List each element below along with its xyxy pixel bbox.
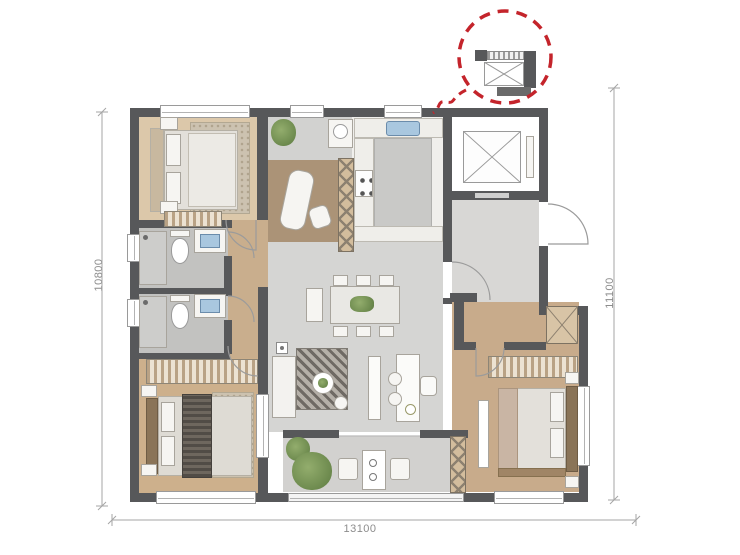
dining-end-chair xyxy=(306,288,323,322)
bedroom2-pillow xyxy=(161,402,175,432)
master-nightstand xyxy=(565,476,579,488)
dining-chair xyxy=(379,275,394,286)
elevator-door-opening xyxy=(475,193,509,198)
dining-chair xyxy=(333,326,348,337)
bedroom1-pillow xyxy=(166,134,181,166)
window-master-right xyxy=(577,386,590,466)
bathroom2-toilet xyxy=(171,303,189,329)
master-blanket xyxy=(498,388,518,470)
floor-plan-image: 10800 11100 13100 xyxy=(0,0,740,555)
side-chair xyxy=(420,376,437,396)
master-foot-runner xyxy=(498,468,566,477)
balcony-plant-large xyxy=(292,452,332,490)
master-nightstand xyxy=(565,372,579,384)
bathroom2-toilet-tank xyxy=(170,295,190,302)
dimension-label-right: 11100 xyxy=(604,263,616,323)
master-bench xyxy=(478,400,489,468)
door-arc-main-entry xyxy=(548,204,588,244)
bathroom1-toilet-tank xyxy=(170,230,190,237)
dining-chair xyxy=(356,326,371,337)
window-bedroom2-balcony xyxy=(256,394,269,458)
flue-vent-grille xyxy=(487,51,525,60)
flue-shaft-detail xyxy=(484,62,524,86)
wall-master-top-b xyxy=(504,342,546,350)
flue-wall-left xyxy=(475,50,487,61)
kitchen-sink xyxy=(386,121,420,136)
bathroom1-toilet xyxy=(171,238,189,264)
window-bedroom2-bottom xyxy=(156,491,256,504)
bedroom1-pillow xyxy=(166,172,181,204)
bedroom2-blanket xyxy=(182,394,212,478)
balcony-chair xyxy=(338,458,358,480)
elevator-door-slot xyxy=(526,136,534,178)
bedroom1-dresser xyxy=(164,211,222,227)
flue-wall-right xyxy=(524,51,536,88)
wall-corridor-left xyxy=(454,296,464,350)
floor-register-dot xyxy=(280,346,284,350)
kitchen-stove xyxy=(355,170,373,197)
dimension-label-bottom: 13100 xyxy=(320,523,400,535)
bathroom1-sink xyxy=(200,234,220,248)
bedroom2-wardrobe xyxy=(146,359,258,384)
work-chair xyxy=(388,372,402,386)
entry-hall-floor xyxy=(452,200,539,302)
bedroom2-nightstand xyxy=(141,464,157,476)
dining-chair xyxy=(333,275,348,286)
balcony-master-cabinet xyxy=(450,436,466,493)
bedroom1-nightstand xyxy=(160,117,178,130)
bedroom2-pillow xyxy=(161,436,175,466)
sofa xyxy=(272,356,296,418)
bathroom2-drain-icon xyxy=(143,300,148,305)
bedroom2-nightstand xyxy=(141,385,157,397)
console-cabinet xyxy=(368,356,381,420)
wall-living-balcony-a xyxy=(283,430,339,438)
balcony-table-dot xyxy=(369,459,377,467)
balcony-chair xyxy=(390,458,410,480)
window-utility-top xyxy=(290,105,324,118)
dining-chair xyxy=(356,275,371,286)
bedroom1-duvet xyxy=(188,133,236,207)
dining-chair xyxy=(379,326,394,337)
floor-outlet-icon xyxy=(405,404,416,415)
wall-bedroom1-right xyxy=(257,108,268,220)
dining-centerpiece xyxy=(350,296,374,312)
work-chair xyxy=(388,392,402,406)
dimension-label-left: 10800 xyxy=(93,245,105,305)
bedroom2-headboard xyxy=(146,398,158,474)
side-table xyxy=(334,396,348,410)
master-pillow xyxy=(550,392,564,422)
entry-door-opening xyxy=(539,202,548,246)
elevator-cab-icon xyxy=(463,131,521,183)
coffee-table-plant xyxy=(318,378,328,388)
washing-machine-drum-icon xyxy=(333,124,348,139)
wall-master-top-a xyxy=(464,342,476,350)
dimension-line-left xyxy=(96,108,108,510)
master-headboard xyxy=(566,386,578,472)
kitchen-counter-bottom xyxy=(354,226,443,242)
master-pillow xyxy=(550,428,564,458)
wall-hall-living xyxy=(258,287,268,378)
bathroom2-sink xyxy=(200,299,220,313)
balcony-table xyxy=(362,450,386,490)
flue-wall-bottom xyxy=(497,87,531,96)
window-kitchen-top xyxy=(384,105,422,118)
utility-plant xyxy=(271,119,296,146)
wall-bath-hall-b xyxy=(224,320,232,354)
balcony-table-dot xyxy=(369,473,377,481)
wall-kitchen-right xyxy=(443,108,452,262)
balcony-railing xyxy=(288,493,464,502)
corridor-wardrobe xyxy=(546,306,578,344)
study-tall-cabinet xyxy=(338,158,354,252)
window-master-bottom xyxy=(494,491,564,504)
bathroom1-drain-icon xyxy=(143,235,148,240)
bedroom1-headboard xyxy=(150,128,164,212)
